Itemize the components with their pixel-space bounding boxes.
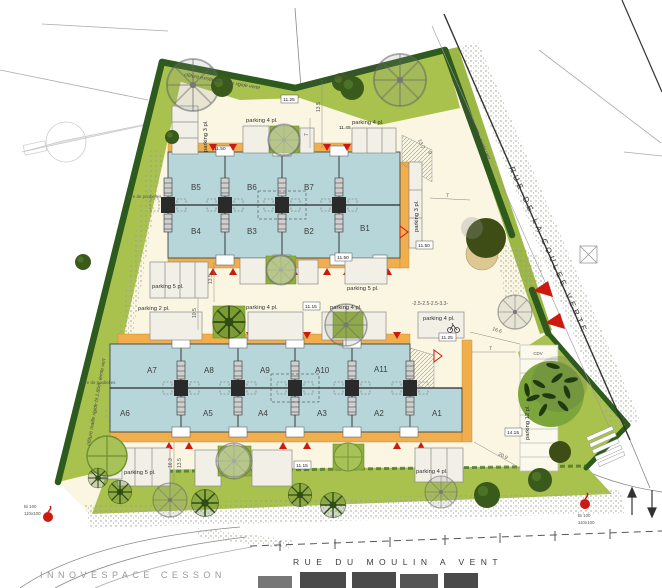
parking-label-4: parking 5 pl. bbox=[152, 284, 184, 290]
unit-label-a4: A4 bbox=[258, 409, 268, 418]
parking-label-7: parking 4 pl. bbox=[246, 305, 278, 311]
hydrant-left: Bi 100 110x100 bbox=[24, 504, 53, 522]
site-plan: B5 B6 B7 B4 B3 B2 B1 bbox=[0, 0, 662, 588]
traffic-arrows bbox=[628, 488, 656, 517]
parking-label-11: parking 4 pl. bbox=[416, 469, 448, 475]
area-label-innovespace: INNOVESPACE CESSON bbox=[40, 570, 226, 580]
level-2: 11.45 bbox=[339, 125, 351, 131]
unit-label-b3: B3 bbox=[247, 227, 257, 236]
hydrant-right-line2: 110x100 bbox=[578, 520, 595, 525]
parking-label-5: parking 5 pl. bbox=[347, 286, 379, 292]
street-name-moulin-a-vent: RUE DU MOULIN A VENT bbox=[293, 557, 503, 567]
parking-label-9: parking 4 pl. bbox=[423, 316, 455, 322]
waste-area-label-1: aire de poubelles bbox=[128, 194, 162, 199]
unit-label-b5: B5 bbox=[191, 183, 201, 192]
site-plan-screenshot: B5 B6 B7 B4 B3 B2 B1 bbox=[0, 0, 662, 588]
dim-7-right: 7 bbox=[489, 346, 492, 352]
parking-label-2: parking 4 pl. bbox=[352, 120, 384, 126]
level-8: 14.15 bbox=[507, 430, 519, 436]
dim-16-3: 16.3 bbox=[168, 458, 174, 468]
unit-label-b7: B7 bbox=[304, 183, 314, 192]
unit-label-a9: A9 bbox=[260, 366, 270, 375]
level-3: 11.50 bbox=[418, 243, 430, 249]
unit-label-b2: B2 bbox=[304, 227, 314, 236]
parking-label-1: parking 4 pl. bbox=[246, 118, 278, 124]
dim-spacing: -2.5-2.5-2.5-3.3- bbox=[412, 301, 448, 307]
dim-7-b1: 7 bbox=[446, 193, 449, 199]
dim-7-top: 7 bbox=[304, 133, 310, 136]
unit-label-a11: A11 bbox=[374, 365, 388, 374]
dim-13-5-bottom: 13.5 bbox=[177, 458, 183, 468]
parking-label-6: parking 2 pl. bbox=[138, 306, 170, 312]
level-5: 11.15 bbox=[305, 304, 317, 310]
unit-label-a7: A7 bbox=[147, 366, 157, 375]
level-6: 11.25 bbox=[441, 335, 453, 341]
cdv-label-1: CDV bbox=[533, 351, 542, 356]
utility-box bbox=[580, 246, 597, 263]
unit-label-a10: A10 bbox=[315, 366, 330, 375]
unit-label-a5: A5 bbox=[203, 409, 213, 418]
unit-label-a3: A3 bbox=[317, 409, 327, 418]
level-4: 11.50 bbox=[337, 255, 349, 261]
unit-label-a1: A1 bbox=[432, 409, 442, 418]
parking-label-3: parking 3 pl. bbox=[414, 200, 420, 232]
hydrant-left-line2: 110x100 bbox=[24, 511, 41, 516]
dim-13-5-mid: 13.5 bbox=[208, 274, 214, 284]
waste-area-label-2: aire de poubelles bbox=[82, 380, 116, 385]
unit-label-a6: A6 bbox=[120, 409, 130, 418]
unit-label-b1: B1 bbox=[360, 224, 370, 233]
parking-label-0: parking 3 pl. bbox=[203, 120, 209, 152]
unit-label-b4: B4 bbox=[191, 227, 201, 236]
hydrant-left-line1: Bi 100 bbox=[24, 504, 37, 509]
level-1: 11.50 bbox=[214, 146, 226, 152]
hydrant-right-line1: Bi 100 bbox=[578, 513, 591, 518]
dim-10-5: 10.5 bbox=[192, 308, 198, 318]
unit-label-a8: A8 bbox=[204, 366, 214, 375]
parking-label-10: parking 5 pl. bbox=[124, 470, 156, 476]
level-7: 11.15 bbox=[296, 463, 308, 469]
parking-label-8: parking 4 pl. bbox=[330, 305, 362, 311]
unit-label-b6: B6 bbox=[247, 183, 257, 192]
building-block-b: B5 B6 B7 B4 B3 B2 B1 bbox=[150, 135, 432, 275]
parking-label-12: parking 12 pl. bbox=[525, 405, 531, 440]
unit-label-a2: A2 bbox=[374, 409, 384, 418]
level-0: 11.25 bbox=[283, 97, 295, 103]
dim-13-5-top: 13.5 bbox=[316, 102, 322, 112]
